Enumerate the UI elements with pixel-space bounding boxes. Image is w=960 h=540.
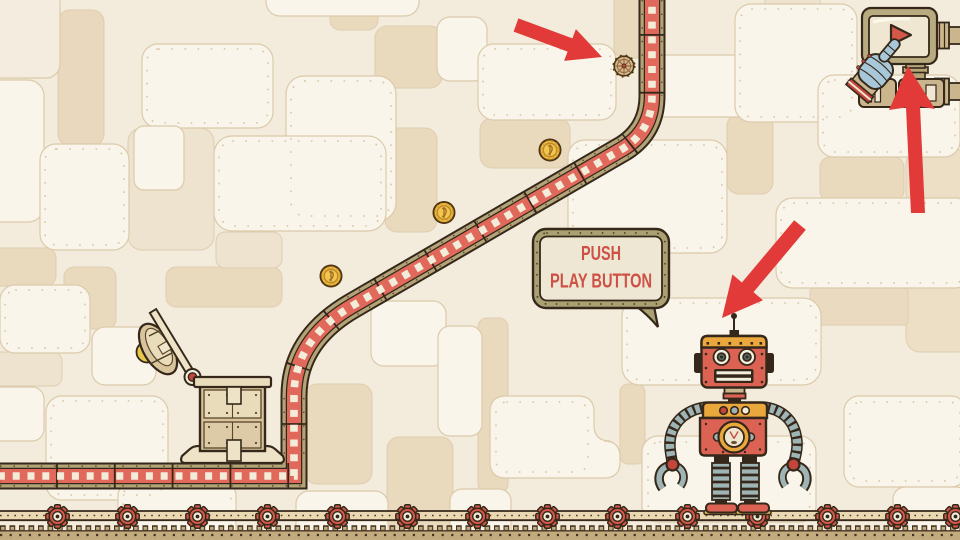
svg-text:PLAY BUTTON: PLAY BUTTON — [550, 271, 652, 293]
svg-text:PUSH: PUSH — [581, 243, 621, 265]
